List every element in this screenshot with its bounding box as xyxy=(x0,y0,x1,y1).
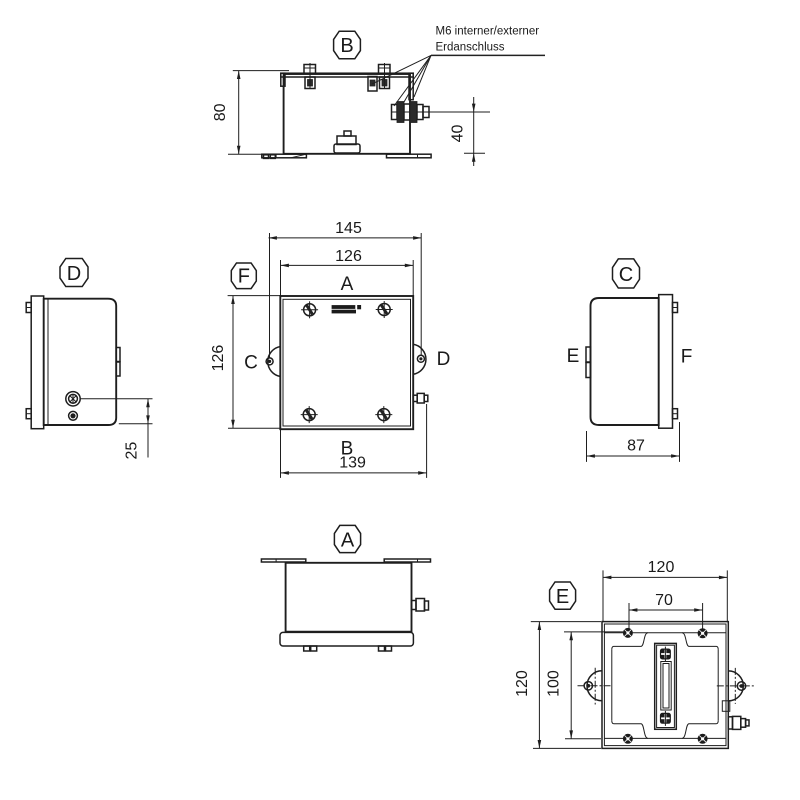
svg-text:C: C xyxy=(619,264,633,286)
svg-text:40: 40 xyxy=(450,125,467,143)
svg-text:80: 80 xyxy=(212,103,229,121)
svg-text:87: 87 xyxy=(627,438,645,455)
svg-text:70: 70 xyxy=(655,592,673,609)
svg-text:E: E xyxy=(567,346,580,367)
svg-text:25: 25 xyxy=(124,442,141,460)
svg-text:100: 100 xyxy=(546,670,563,697)
svg-text:139: 139 xyxy=(339,455,366,472)
svg-text:C: C xyxy=(244,353,258,374)
svg-text:126: 126 xyxy=(210,345,227,372)
svg-text:F: F xyxy=(681,347,693,368)
svg-text:145: 145 xyxy=(335,220,362,237)
svg-text:D: D xyxy=(437,349,451,370)
svg-text:A: A xyxy=(341,274,354,295)
svg-text:D: D xyxy=(67,263,81,285)
svg-text:120: 120 xyxy=(648,559,675,576)
svg-text:F: F xyxy=(238,266,250,288)
svg-text:126: 126 xyxy=(335,248,362,265)
svg-text:E: E xyxy=(556,586,569,608)
svg-text:120: 120 xyxy=(514,670,531,697)
svg-text:Erdanschluss: Erdanschluss xyxy=(436,42,505,54)
svg-text:A: A xyxy=(341,529,355,551)
svg-text:B: B xyxy=(340,35,353,57)
svg-text:M6 interner/externer: M6 interner/externer xyxy=(436,26,540,38)
